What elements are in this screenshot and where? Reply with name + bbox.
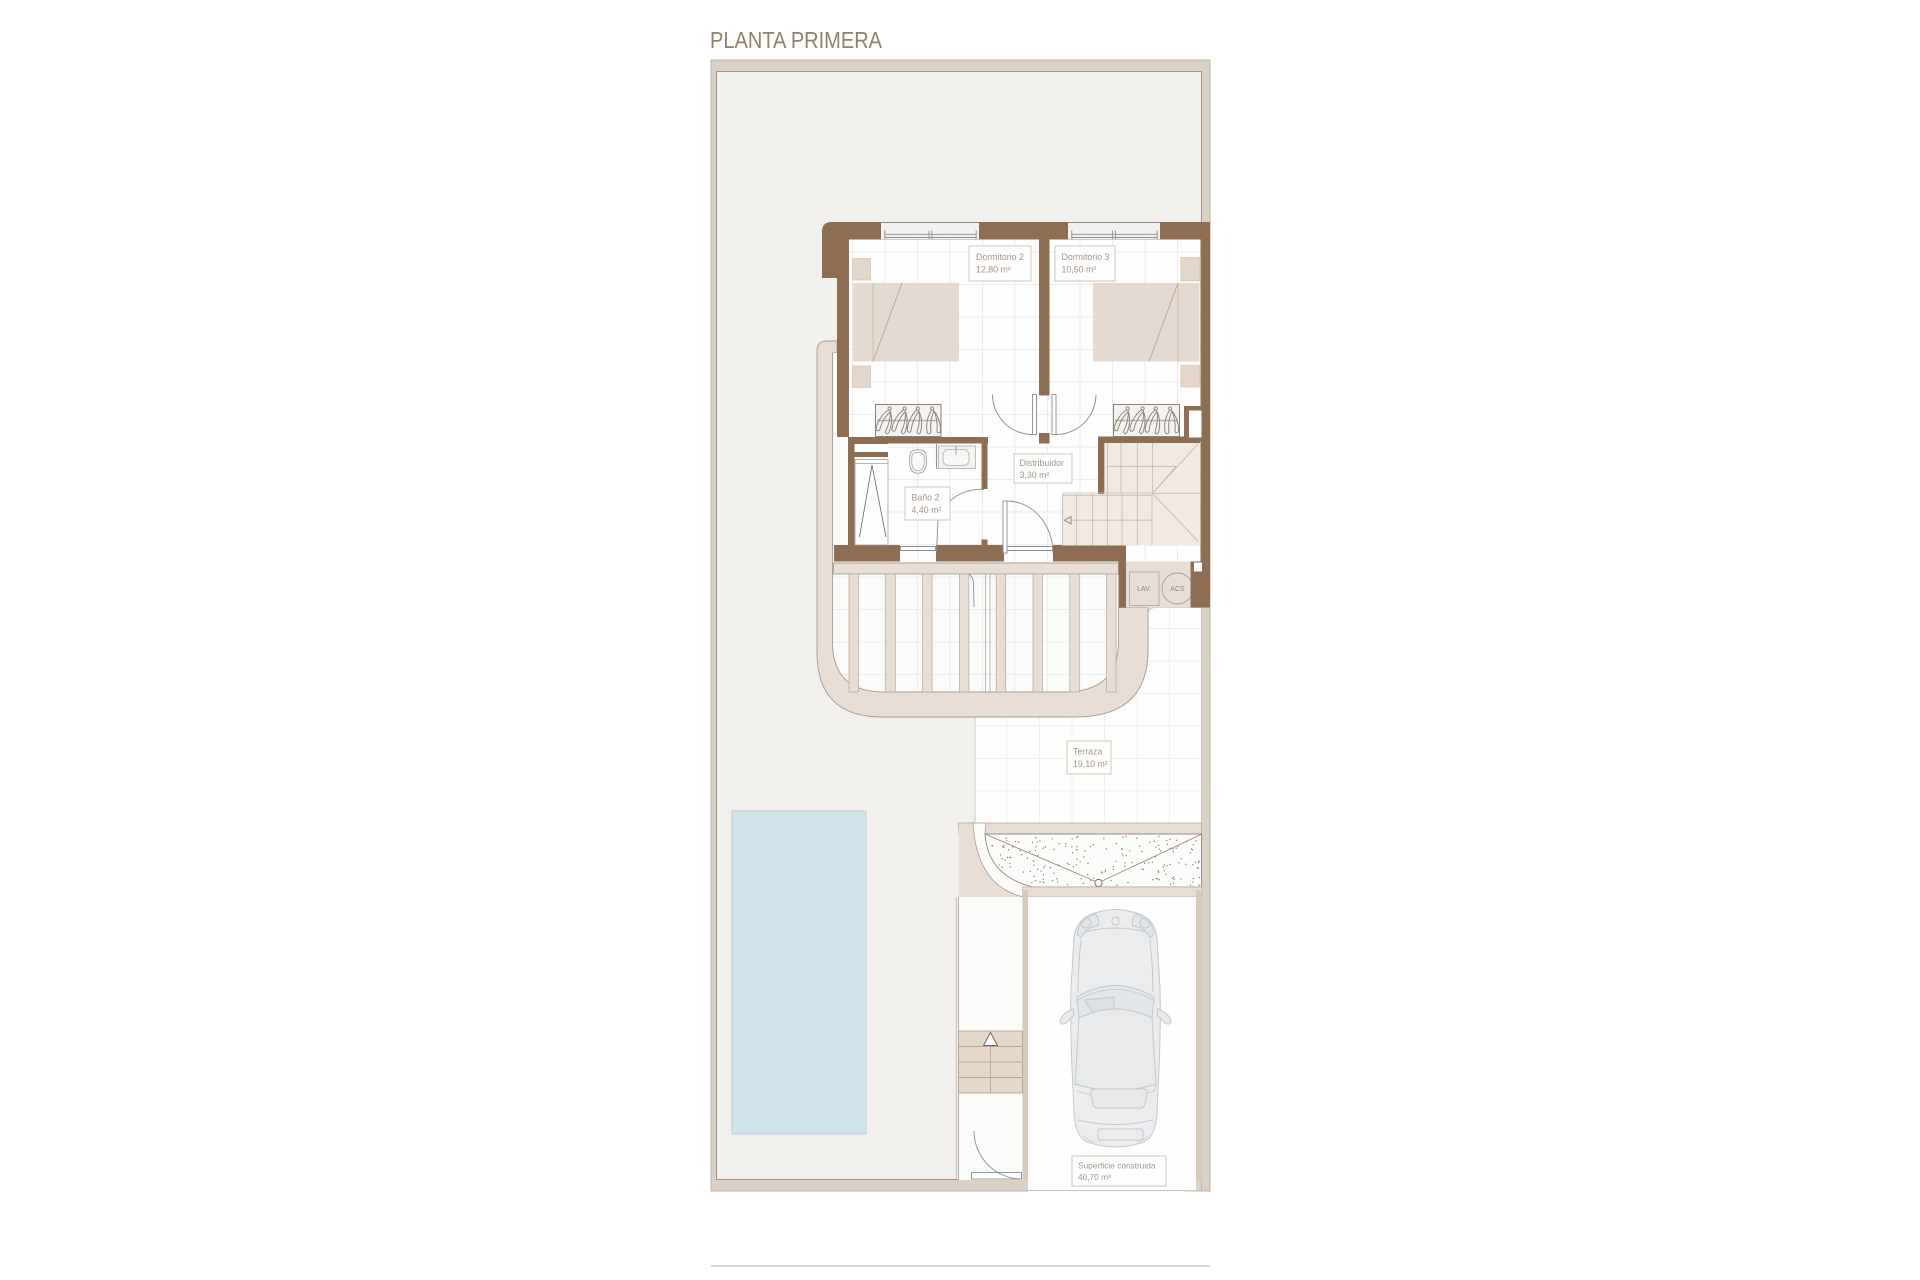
svg-text:3,30 m²: 3,30 m²	[1020, 470, 1050, 480]
svg-text:Dormitorio 3: Dormitorio 3	[1062, 252, 1110, 262]
svg-text:Dormitorio 2: Dormitorio 2	[976, 252, 1024, 262]
svg-text:Baño 2: Baño 2	[912, 493, 940, 503]
svg-text:10,50 m²: 10,50 m²	[1062, 265, 1097, 275]
svg-text:19,10 m²: 19,10 m²	[1073, 759, 1108, 769]
svg-text:4,40 m²: 4,40 m²	[912, 505, 942, 515]
svg-text:Superficie construida: Superficie construida	[1078, 1161, 1156, 1171]
svg-text:LAV.: LAV.	[1137, 586, 1151, 593]
svg-text:Distribuidor: Distribuidor	[1020, 458, 1065, 468]
svg-text:40,70 m²: 40,70 m²	[1078, 1172, 1111, 1182]
svg-text:PLANTA PRIMERA: PLANTA PRIMERA	[710, 27, 883, 53]
svg-text:Terraza: Terraza	[1073, 747, 1102, 757]
svg-text:ACS: ACS	[1170, 586, 1185, 593]
svg-text:12,80 m²: 12,80 m²	[976, 265, 1011, 275]
